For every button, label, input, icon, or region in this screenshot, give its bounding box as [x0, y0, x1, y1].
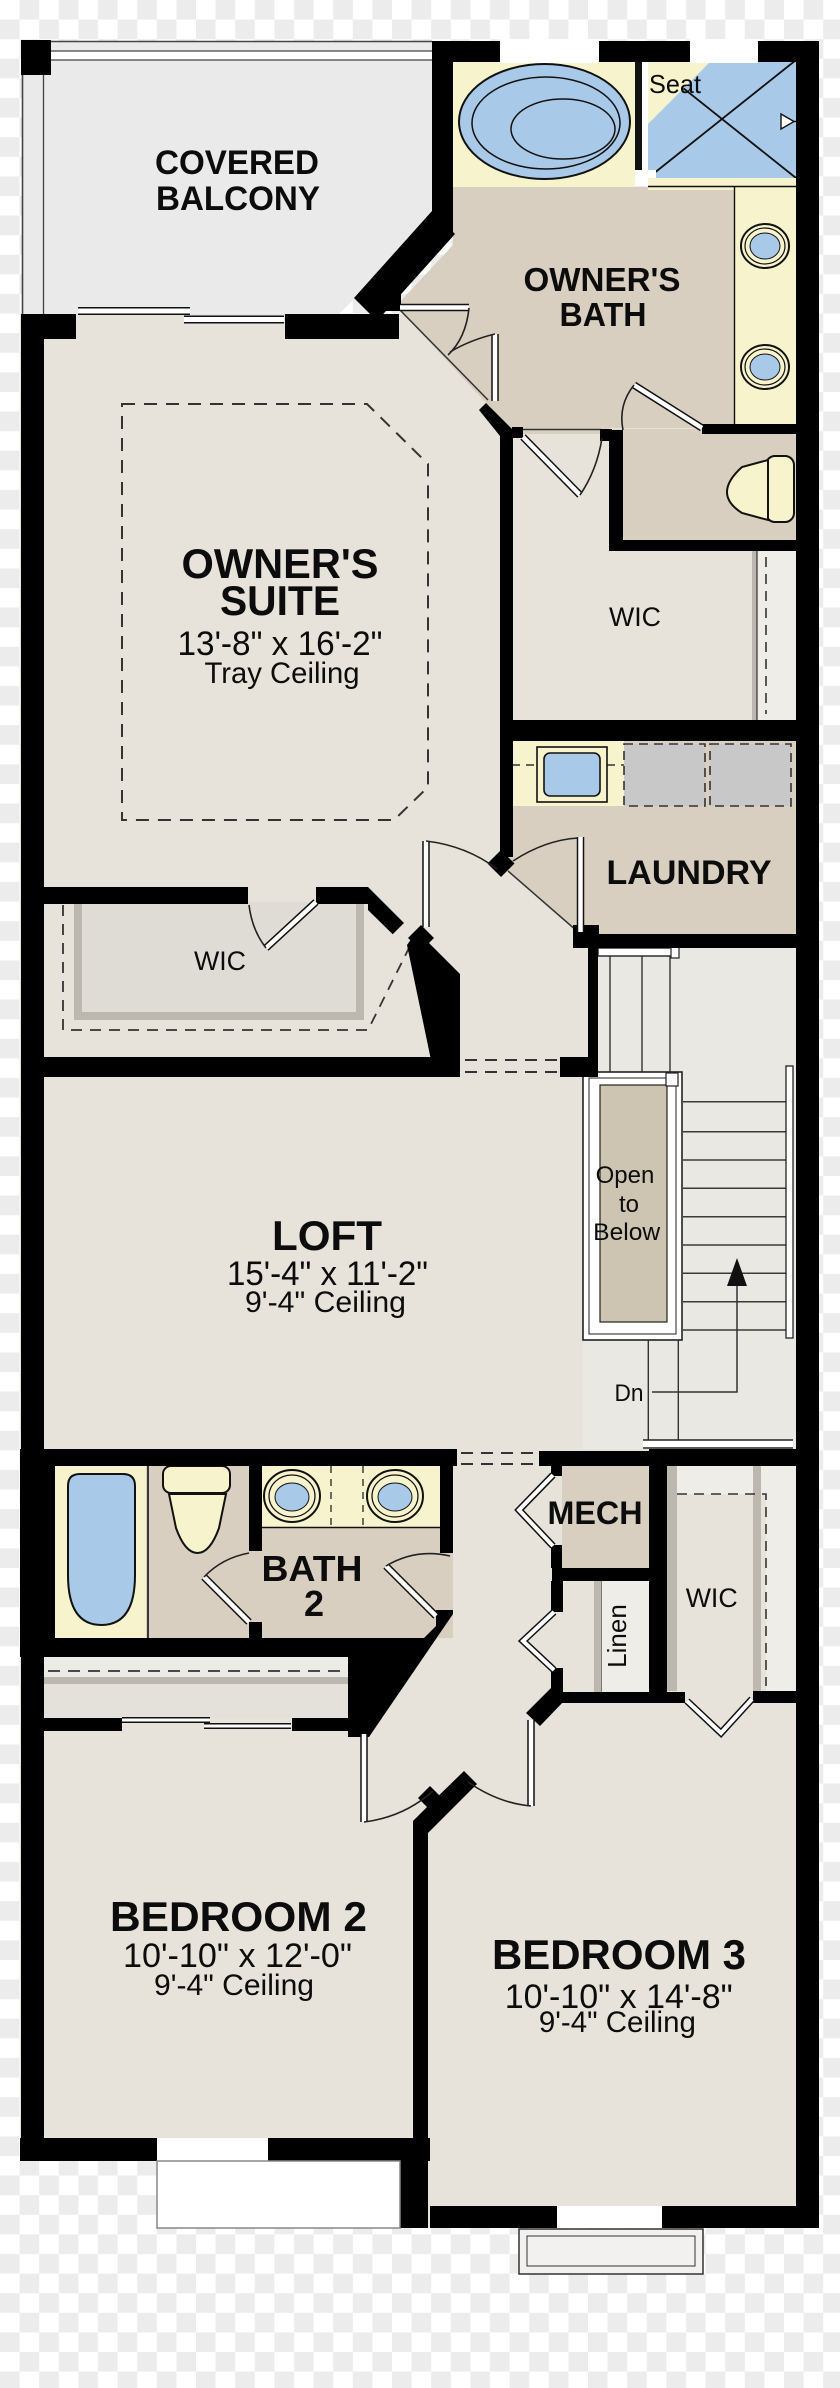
- svg-text:COVERED: COVERED: [155, 144, 319, 182]
- svg-text:OWNER'S: OWNER'S: [524, 261, 681, 298]
- svg-text:Open: Open: [596, 1162, 655, 1189]
- svg-text:Below: Below: [593, 1219, 661, 1246]
- svg-text:LAUNDRY: LAUNDRY: [607, 854, 772, 892]
- svg-text:Tray Ceiling: Tray Ceiling: [205, 657, 360, 690]
- svg-text:WIC: WIC: [194, 946, 246, 976]
- svg-text:WIC: WIC: [686, 1583, 738, 1613]
- svg-text:BEDROOM 3: BEDROOM 3: [492, 1931, 746, 1978]
- svg-text:LOFT: LOFT: [272, 1212, 382, 1259]
- svg-text:SUITE: SUITE: [220, 577, 340, 624]
- svg-text:9'-4" Ceiling: 9'-4" Ceiling: [245, 1286, 406, 1319]
- svg-text:BEDROOM 2: BEDROOM 2: [110, 1893, 367, 1940]
- svg-text:BATH: BATH: [560, 296, 647, 333]
- svg-text:WIC: WIC: [609, 602, 661, 632]
- svg-text:2: 2: [304, 1583, 324, 1624]
- svg-text:9'-4" Ceiling: 9'-4" Ceiling: [539, 2006, 696, 2039]
- svg-text:to: to: [619, 1191, 639, 1218]
- svg-text:MECH: MECH: [548, 1495, 643, 1531]
- svg-text:BALCONY: BALCONY: [156, 180, 320, 218]
- svg-text:Seat: Seat: [649, 69, 702, 99]
- svg-text:Dn: Dn: [615, 1380, 644, 1407]
- svg-text:Linen: Linen: [602, 1604, 632, 1668]
- svg-text:9'-4" Ceiling: 9'-4" Ceiling: [154, 1969, 314, 2002]
